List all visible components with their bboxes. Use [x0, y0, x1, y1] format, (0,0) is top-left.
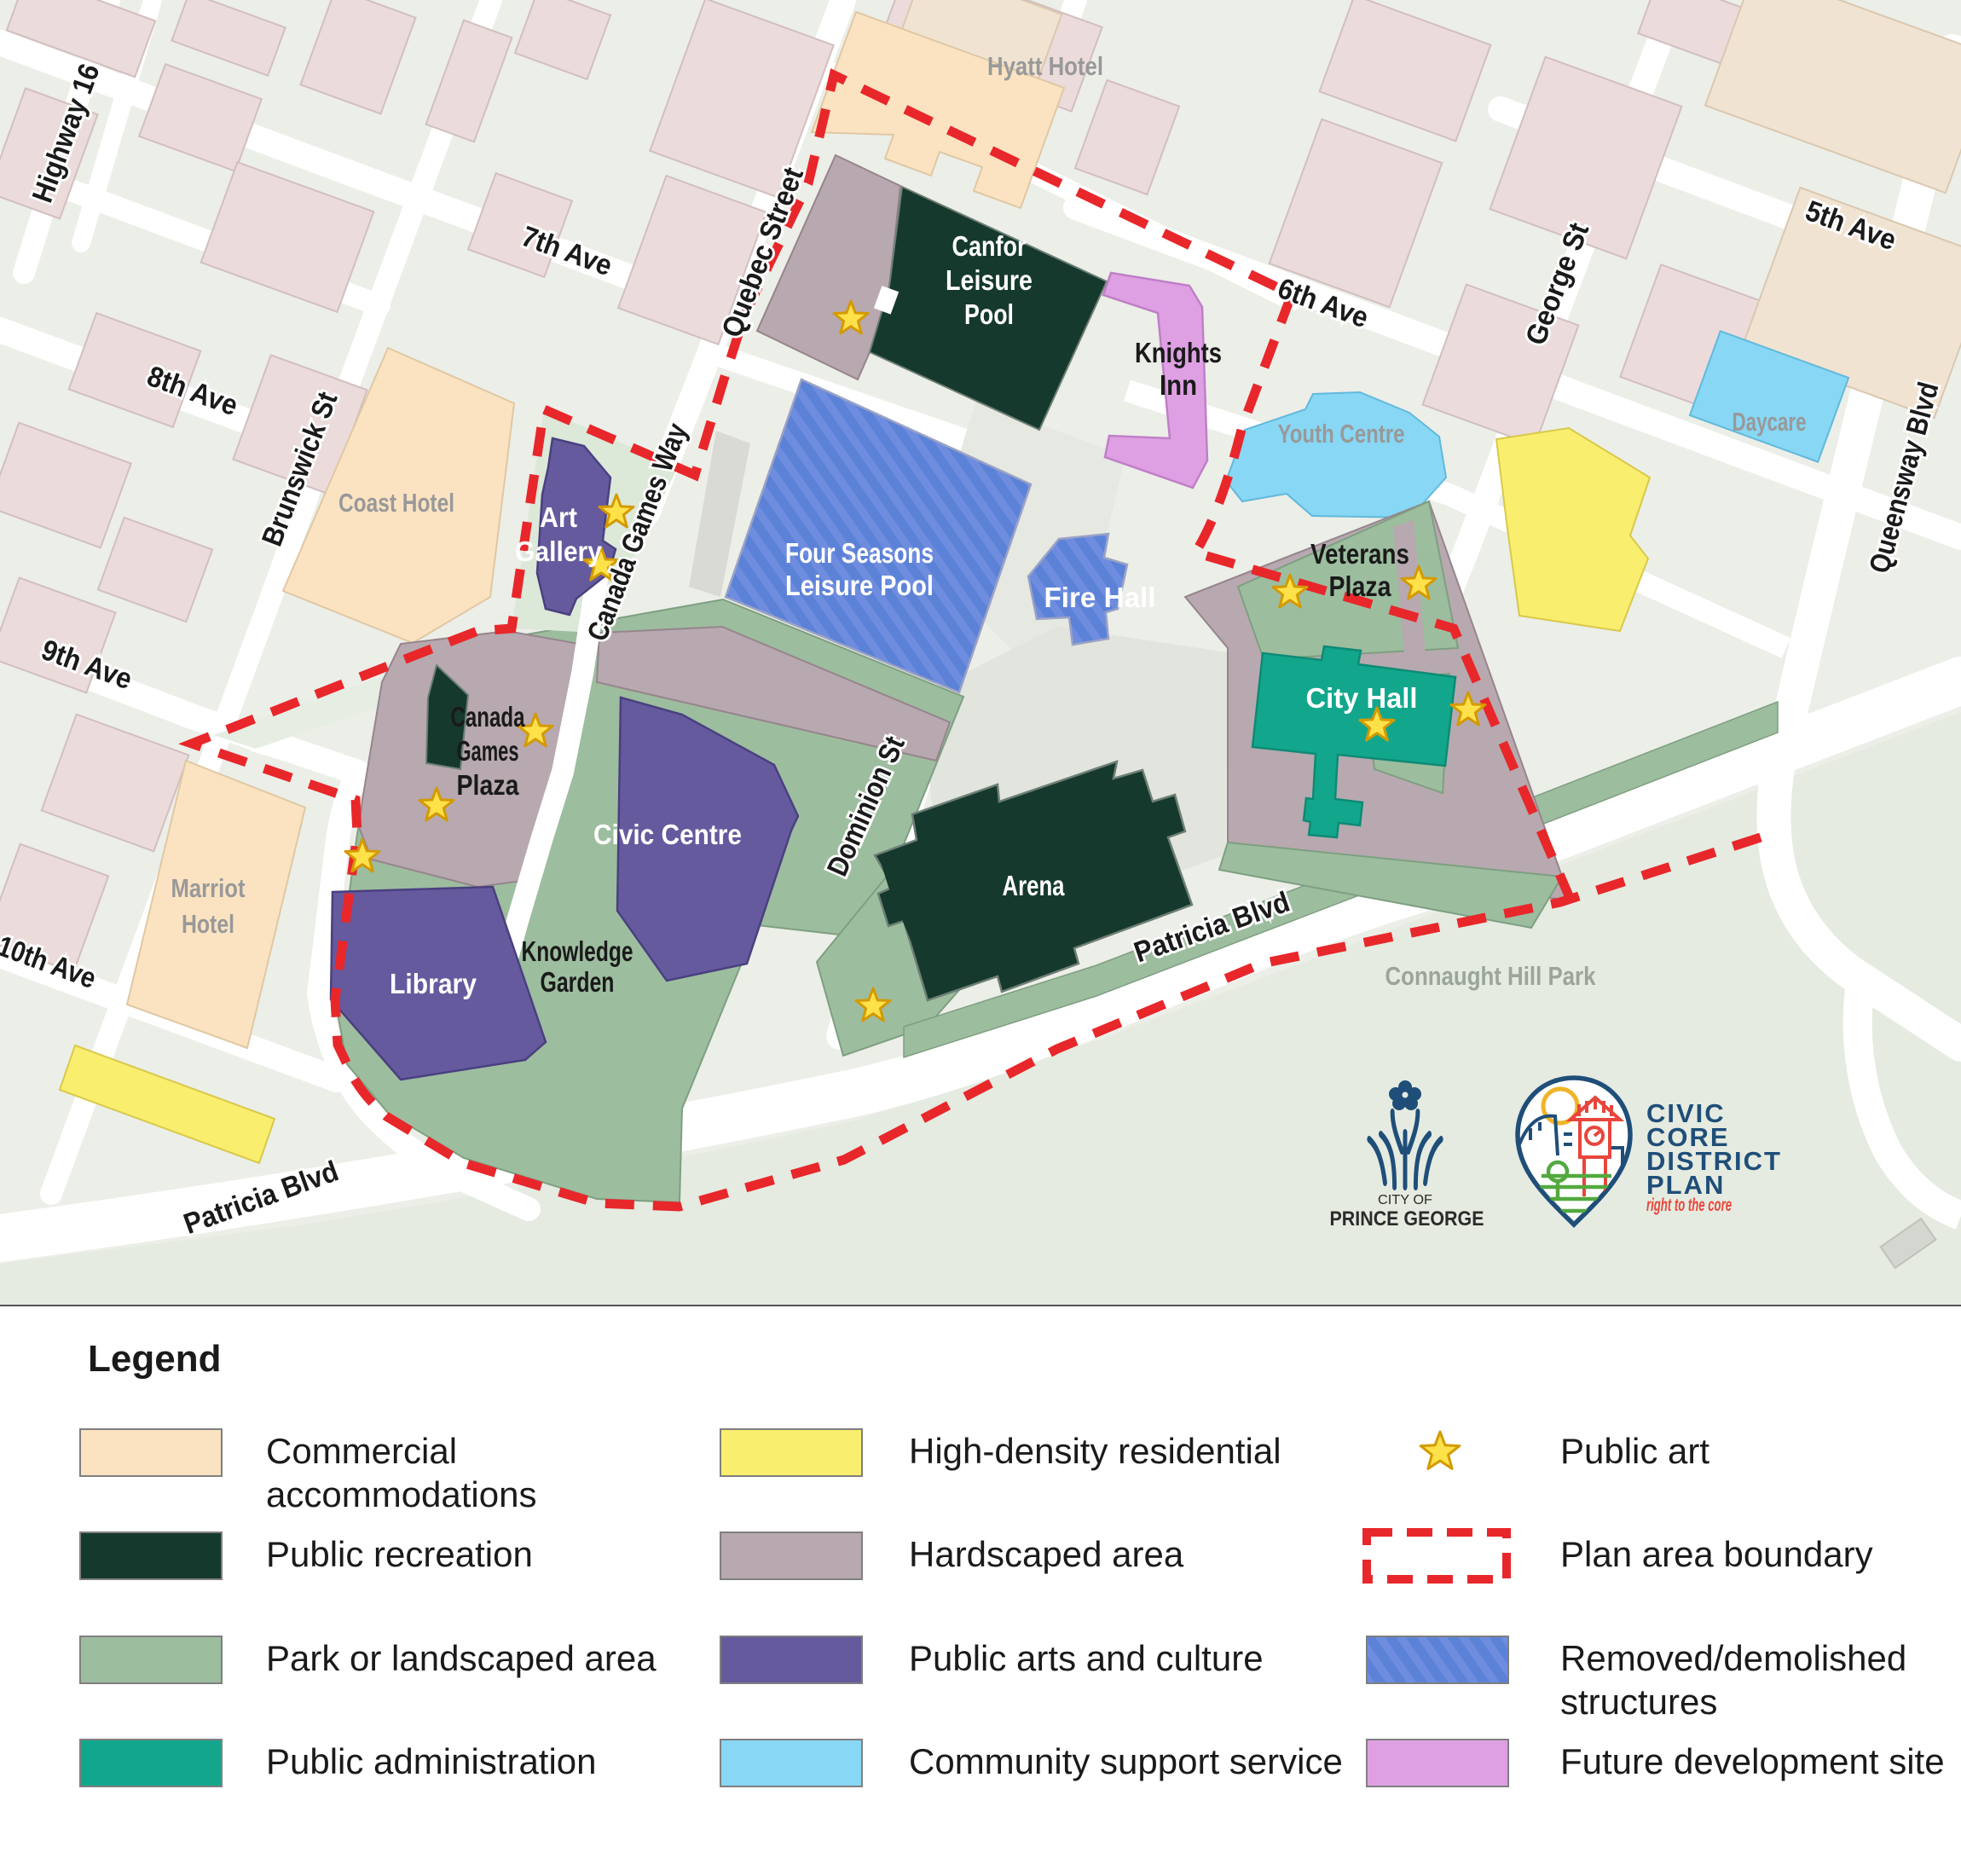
svg-text:Connaught Hill Park: Connaught Hill Park — [1385, 961, 1597, 991]
svg-text:PRINCE GEORGE: PRINCE GEORGE — [1330, 1207, 1484, 1230]
svg-text:Knowledge: Knowledge — [522, 935, 633, 967]
svg-text:Plaza: Plaza — [457, 769, 520, 801]
svg-text:CITY OF: CITY OF — [1378, 1193, 1432, 1207]
svg-text:Fire Hall: Fire Hall — [1044, 582, 1156, 613]
svg-text:Art: Art — [540, 501, 577, 533]
svg-text:Coast Hotel: Coast Hotel — [338, 488, 454, 518]
svg-text:Veterans: Veterans — [1310, 538, 1409, 570]
svg-text:Civic Centre: Civic Centre — [593, 819, 742, 850]
svg-text:Hyatt Hotel: Hyatt Hotel — [987, 51, 1103, 81]
svg-text:Canfor: Canfor — [952, 230, 1027, 262]
svg-text:Canada: Canada — [451, 701, 525, 732]
svg-text:accommodations: accommodations — [266, 1474, 536, 1514]
svg-text:Future development site: Future development site — [1560, 1741, 1945, 1781]
svg-text:Arena: Arena — [1003, 870, 1065, 901]
svg-text:Commercial: Commercial — [266, 1431, 457, 1471]
svg-text:Public art: Public art — [1560, 1431, 1709, 1471]
svg-text:Games: Games — [457, 735, 519, 767]
svg-text:Removed/demolished: Removed/demolished — [1560, 1638, 1906, 1678]
svg-text:Knights: Knights — [1135, 337, 1222, 368]
svg-text:Plan area boundary: Plan area boundary — [1560, 1534, 1873, 1574]
svg-text:Pool: Pool — [964, 298, 1014, 330]
svg-text:Public recreation: Public recreation — [266, 1534, 533, 1574]
svg-text:Marriot: Marriot — [171, 873, 246, 903]
svg-text:Legend: Legend — [88, 1338, 221, 1380]
svg-text:Four Seasons: Four Seasons — [785, 537, 934, 569]
svg-text:Plaza: Plaza — [1329, 570, 1392, 602]
svg-text:Public administration: Public administration — [266, 1741, 597, 1781]
svg-text:structures: structures — [1560, 1682, 1717, 1722]
svg-text:Daycare: Daycare — [1733, 407, 1807, 437]
svg-text:Inn: Inn — [1160, 369, 1197, 401]
svg-text:Park or landscaped area: Park or landscaped area — [266, 1638, 657, 1678]
svg-text:right to the core: right to the core — [1646, 1196, 1732, 1215]
svg-text:Hotel: Hotel — [182, 909, 234, 939]
svg-text:Public arts and culture: Public arts and culture — [909, 1638, 1264, 1678]
svg-text:Youth Centre: Youth Centre — [1278, 419, 1405, 449]
svg-text:Leisure: Leisure — [946, 264, 1033, 296]
svg-text:Community support service: Community support service — [909, 1741, 1343, 1781]
svg-text:Garden: Garden — [541, 966, 615, 998]
svg-text:Leisure Pool: Leisure Pool — [785, 570, 934, 601]
svg-text:High-density residential: High-density residential — [909, 1431, 1281, 1471]
svg-text:Library: Library — [390, 968, 477, 999]
svg-text:Hardscaped area: Hardscaped area — [909, 1534, 1184, 1574]
svg-text:Gallery: Gallery — [515, 536, 603, 567]
svg-text:City Hall: City Hall — [1306, 682, 1418, 714]
